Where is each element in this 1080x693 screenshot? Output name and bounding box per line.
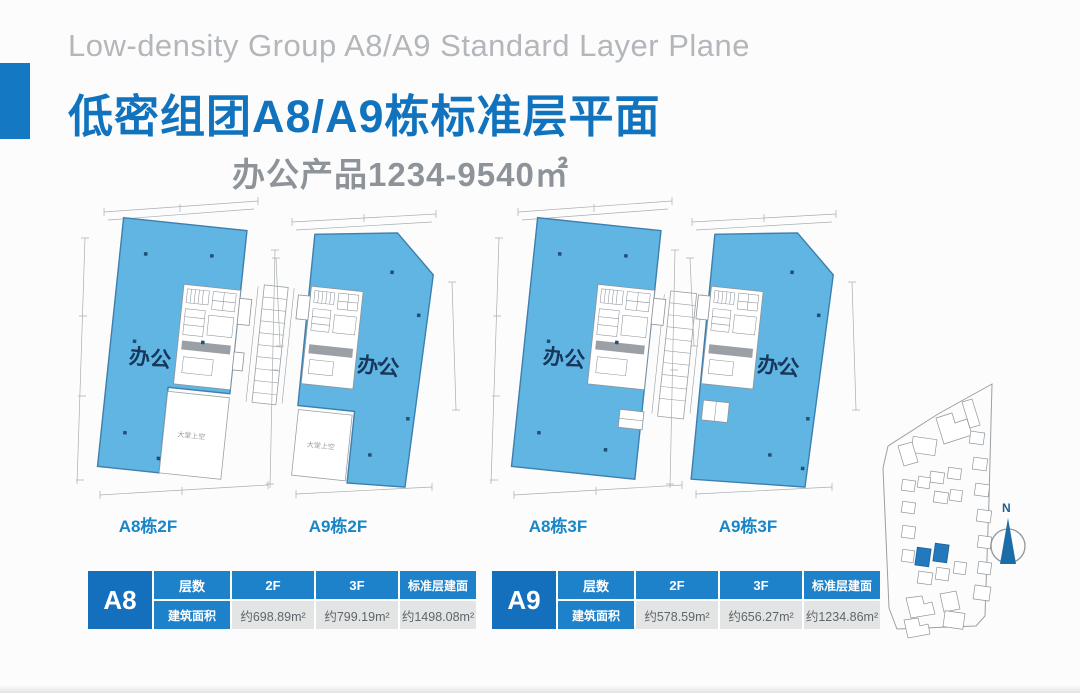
area-2f-value: 约578.59m² — [636, 601, 718, 629]
zone-label: 办公 — [128, 345, 172, 372]
area-std-value: 约1234.86m² — [804, 601, 880, 629]
col-std-header: 标准层建面 — [804, 571, 880, 599]
subtitle-product-area: 办公产品1234-9540㎡ — [232, 148, 569, 196]
caption-a9-2f: A9栋2F — [273, 512, 403, 537]
zone-label: 办公 — [756, 354, 800, 381]
north-compass: N — [991, 501, 1025, 564]
area-2f-value: 约698.89m² — [232, 601, 314, 629]
area-3f-value: 约799.19m² — [316, 601, 398, 629]
table-building-label: A9 — [492, 571, 556, 629]
caption-a8-3f: A8栋3F — [493, 512, 623, 537]
floorplan-a9-3f: 办公 — [666, 210, 861, 505]
caption-a8-2f: A8栋2F — [83, 512, 213, 537]
title-chinese: 低密组团A8/A9栋标准层平面 — [68, 80, 661, 145]
zone-label: 办公 — [356, 354, 400, 381]
area-std-value: 约1498.08m² — [400, 601, 476, 629]
caption-a9-3f: A9栋3F — [683, 512, 813, 537]
spec-table-a9: A9 层数 2F 3F 标准层建面 建筑面积 约578.59m² 约656.27… — [492, 571, 872, 629]
title-english: Low-density Group A8/A9 Standard Layer P… — [68, 28, 750, 64]
zone-label: 办公 — [542, 345, 586, 372]
col-2f-header: 2F — [636, 571, 718, 599]
highlight-building-a9 — [933, 543, 949, 563]
site-location-map: N — [878, 380, 1058, 675]
spec-table-a8: A8 层数 2F 3F 标准层建面 建筑面积 约698.89m² 约799.19… — [88, 571, 468, 629]
table-building-label: A8 — [88, 571, 152, 629]
site-buildings — [898, 399, 992, 638]
bottom-edge-fade — [0, 685, 1080, 693]
highlight-building-a8 — [915, 547, 931, 567]
area-3f-value: 约656.27m² — [720, 601, 802, 629]
col-2f-header: 2F — [232, 571, 314, 599]
area-row-header: 建筑面积 — [558, 601, 634, 629]
core-area — [289, 285, 363, 389]
col-std-header: 标准层建面 — [400, 571, 476, 599]
header-accent-block — [0, 63, 30, 139]
compass-needle-icon — [1000, 518, 1016, 564]
col-3f-header: 3F — [720, 571, 802, 599]
floors-row-header: 层数 — [154, 571, 230, 599]
core-area — [174, 284, 253, 391]
floorplan-a9-2f: 大堂上空 办公 — [266, 210, 461, 505]
col-3f-header: 3F — [316, 571, 398, 599]
north-label: N — [1002, 501, 1011, 515]
floorplan-a8-2f: 大堂上空 — [72, 196, 287, 506]
area-row-header: 建筑面积 — [154, 601, 230, 629]
floors-row-header: 层数 — [558, 571, 634, 599]
